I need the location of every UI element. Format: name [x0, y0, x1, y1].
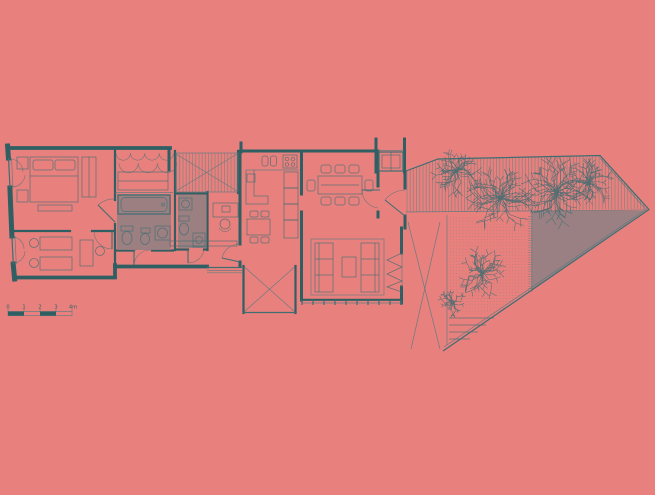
chair — [250, 211, 258, 217]
floor-plan-drawing: 0 1 2 3 4m — [0, 0, 655, 495]
desk — [80, 240, 93, 266]
chair — [30, 239, 39, 248]
desk — [213, 203, 238, 217]
window-bedroom-2 — [12, 236, 25, 264]
nightstand — [17, 157, 28, 169]
chair — [220, 219, 230, 229]
scale-label-0: 0 — [6, 305, 9, 311]
door-bedroom-1 — [98, 199, 115, 222]
chair — [307, 180, 315, 191]
sofa — [315, 243, 333, 292]
chair — [96, 247, 105, 256]
chair — [365, 180, 373, 191]
desk — [40, 237, 72, 250]
floor-plan-canvas: 0 1 2 3 4m — [0, 0, 655, 495]
nightstand — [17, 190, 28, 202]
bench — [38, 205, 72, 211]
scale-label-3: 3 — [54, 305, 57, 311]
entry-hall — [379, 152, 403, 171]
living-room — [311, 239, 384, 295]
cooktop — [283, 155, 297, 168]
bedroom-1 — [17, 157, 96, 211]
door-bedroom-2 — [94, 231, 112, 249]
bathroom-1-floor — [117, 194, 171, 250]
sofa — [361, 243, 379, 292]
coffee-table — [342, 257, 356, 277]
chair — [261, 237, 269, 243]
door-entry — [385, 190, 405, 216]
terrace-ramp-cross — [408, 222, 440, 349]
scale-label-2: 2 — [38, 305, 41, 311]
door-study — [222, 244, 240, 262]
double-bed — [30, 157, 78, 202]
scale-bar: 0 1 2 3 4m — [6, 305, 77, 316]
kitchen — [246, 155, 299, 243]
deck-boardwalk — [406, 156, 648, 212]
chair — [335, 165, 345, 173]
rug — [311, 239, 384, 295]
desk — [40, 257, 72, 270]
chair — [349, 197, 359, 205]
chair — [349, 165, 359, 173]
chair — [261, 211, 269, 217]
dining-room — [307, 165, 373, 205]
scale-label-4m: 4m — [69, 305, 77, 311]
living-room-glazing — [302, 300, 402, 305]
folding-door — [387, 253, 402, 292]
door-dining — [362, 190, 380, 208]
counter-L — [246, 170, 268, 204]
bedroom-2 — [30, 237, 105, 270]
chair — [30, 259, 39, 268]
chair — [250, 237, 258, 243]
window-corridor — [207, 268, 243, 273]
chair — [321, 165, 331, 173]
door-bathroom-1 — [134, 250, 150, 265]
kitchen-table — [247, 219, 270, 235]
tall-units — [284, 172, 298, 238]
chair — [321, 197, 331, 205]
lightwell-patio — [176, 153, 238, 192]
door-bathroom-2 — [188, 250, 204, 263]
chair — [335, 197, 345, 205]
sink — [262, 156, 268, 166]
scale-label-1: 1 — [22, 305, 25, 311]
service-patio — [245, 267, 295, 312]
garden-planting-bed — [449, 216, 528, 314]
garden-edge-band — [528, 216, 533, 292]
